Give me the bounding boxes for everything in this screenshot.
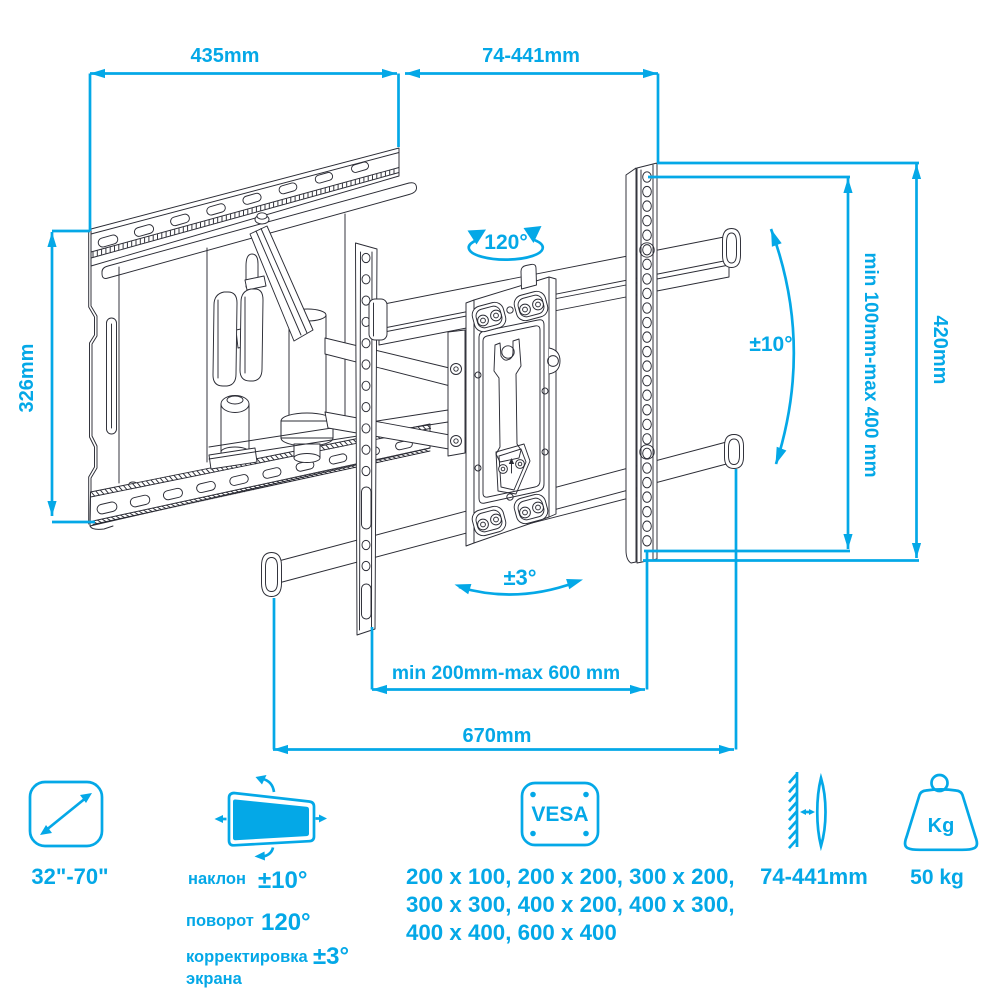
svg-text:120°: 120° [261,909,311,936]
svg-text:74-441mm: 74-441mm [482,45,580,67]
svg-text:74-441mm: 74-441mm [760,864,868,889]
svg-text:120°: 120° [484,231,527,254]
svg-text:±10°: ±10° [749,333,792,356]
svg-text:VESA: VESA [531,803,588,826]
svg-text:поворот: поворот [186,912,254,930]
svg-text:435mm: 435mm [191,45,260,67]
svg-text:±10°: ±10° [258,867,307,894]
svg-text:400 x 400, 600 x 400: 400 x 400, 600 x 400 [406,920,617,945]
svg-text:корректировка: корректировка [186,948,308,966]
svg-text:±3°: ±3° [503,565,536,590]
svg-text:min 100mm-max 400 mm: min 100mm-max 400 mm [860,253,881,478]
svg-text:300 x 300, 400 x 200, 400 x 30: 300 x 300, 400 x 200, 400 x 300, [406,892,735,917]
svg-text:±3°: ±3° [313,943,349,970]
svg-text:32"-70": 32"-70" [31,864,108,889]
svg-text:50 kg: 50 kg [910,866,964,889]
svg-text:670mm: 670mm [463,725,532,747]
svg-text:200 x 100, 200 x 200, 300 x 20: 200 x 100, 200 x 200, 300 x 200, [406,864,735,889]
svg-text:экрана: экрана [186,970,243,988]
svg-text:420mm: 420mm [929,316,951,385]
svg-text:min 200mm-max 600 mm: min 200mm-max 600 mm [392,663,620,684]
svg-text:Kg: Kg [928,815,955,837]
svg-text:326mm: 326mm [16,344,38,413]
svg-text:наклон: наклон [188,870,246,888]
